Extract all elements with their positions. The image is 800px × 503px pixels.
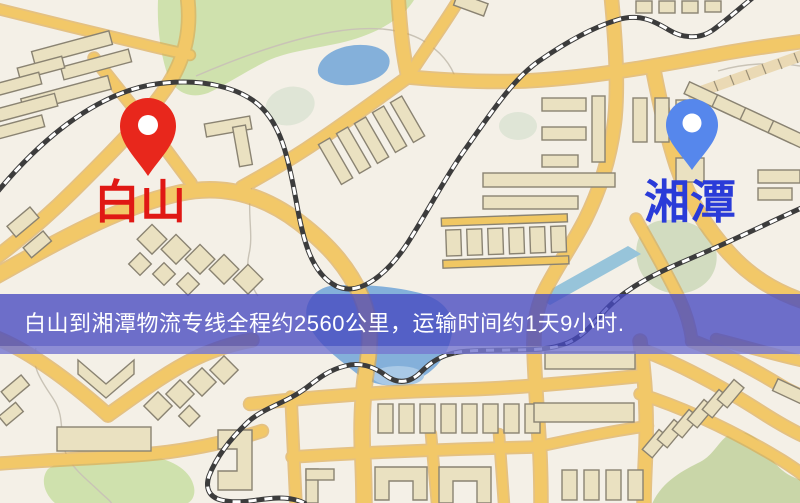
road-segment — [431, 434, 437, 503]
logistics-route-map: 白山 湘潭 白山到湘潭物流专线全程约2560公里，运输时间约1天9小时. — [0, 0, 800, 503]
destination-label: 湘潭 — [644, 176, 736, 228]
banner-text: 白山到湘潭物流专线全程约2560公里，运输时间约1天9小时. — [24, 311, 625, 336]
map-image: 白山 湘潭 白山到湘潭物流专线全程约2560公里，运输时间约1天9小时. — [0, 0, 800, 503]
origin-label: 白山 — [94, 176, 186, 228]
route-banner: 白山到湘潭物流专线全程约2560公里，运输时间约1天9小时. — [0, 294, 800, 354]
banner-bottom-strip — [0, 346, 800, 354]
road-segment — [291, 397, 296, 503]
destination-pin-hole — [683, 114, 702, 133]
origin-pin-hole — [138, 115, 158, 135]
road-segment — [499, 434, 504, 503]
